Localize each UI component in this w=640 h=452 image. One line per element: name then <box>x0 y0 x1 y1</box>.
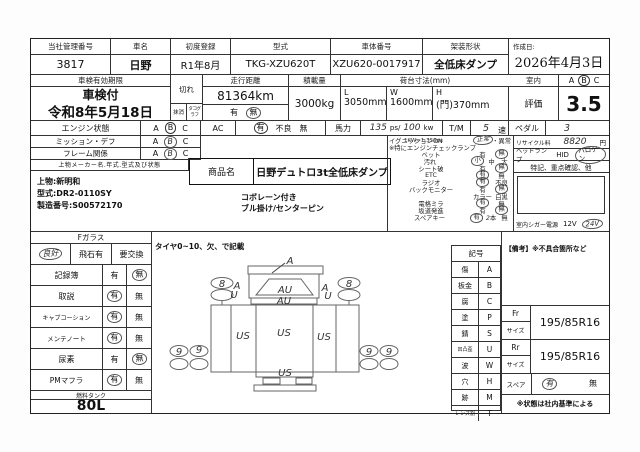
power-ps: 135 <box>370 123 387 133</box>
body-serial: 製造番号:S00572170 <box>37 200 123 211</box>
urea-yes: 有 <box>103 349 127 370</box>
bed-h: (門)370mm <box>436 97 505 111</box>
urea-no-circled: 無 <box>131 353 147 366</box>
maintenance-note-no: 無 <box>127 328 151 349</box>
bed-width-cell: W 1600mm <box>387 87 433 121</box>
cab-caution-yes-circled: 有 <box>107 311 123 324</box>
tachograph-no-circled: 無 <box>246 106 262 119</box>
remarks-header: 【備考】※不具合箇所など <box>505 243 607 253</box>
mark-windshield: AU <box>277 285 293 296</box>
legend-name: 波 <box>452 358 479 373</box>
legend-row-corrosion: 腐C <box>452 294 500 310</box>
legend-row-hole: 穴H <box>452 374 500 390</box>
mark-front-wheel-right: 8 <box>346 279 352 290</box>
interior-grade: A B C <box>559 75 609 87</box>
load-capacity: 3000kg <box>289 87 341 121</box>
label-rear-size: サイズ <box>501 356 531 373</box>
mark-roof: A <box>286 256 294 267</box>
legend-code: M <box>479 390 500 405</box>
tm-value: 5 <box>483 123 489 134</box>
power-ps-unit: ps/ <box>390 124 400 132</box>
shaken-status: 車検付 <box>31 87 170 102</box>
label-load-capacity: 積載量 <box>289 75 341 87</box>
label-tm: T/M <box>443 121 471 136</box>
label-model: 型式 <box>231 39 331 55</box>
model-code: TKG-XZU620T <box>231 55 331 75</box>
first-reg: R1年8月 <box>171 55 231 75</box>
label-management-no: 当社管理番号 <box>31 39 111 55</box>
legend-row-dent: 凹凸歪U <box>452 342 500 358</box>
maintenance-note-yes-circled: 有 <box>107 332 123 345</box>
sparekey-unit: 本 <box>490 215 496 222</box>
shaken-status-cell: 車検付 令和8年5月18日 <box>31 87 171 121</box>
record-book-no-cell: 無 <box>127 265 151 286</box>
mark-bed-center: US <box>277 328 291 339</box>
body-note-koboleen: コボレーン付き <box>241 192 297 203</box>
legend-row-sheetmetal: 板金B <box>452 278 500 294</box>
label-ac: AC <box>201 121 236 136</box>
label-interior: 室内 <box>509 75 559 87</box>
mark-rear-left-2: 9 <box>196 345 202 356</box>
engine-grade: A B C <box>141 121 201 136</box>
label-first-reg: 初度登録 <box>171 39 231 55</box>
pedal-value-cell: 3 <box>546 121 609 136</box>
fglass-stonechip: 飛石有 <box>71 244 112 265</box>
bed-length-cell: L 3050mm <box>341 87 387 121</box>
bed-w: 1600mm <box>390 97 429 108</box>
product-name: 日野デュトロ3t全低床ダンプ <box>254 159 390 184</box>
legend-code: W <box>479 358 500 373</box>
legend-row-rust: 錆S <box>452 326 500 342</box>
label-car-name: 車名 <box>111 39 171 55</box>
legend-code: P <box>479 310 500 325</box>
label-manual: 取説 <box>31 286 103 307</box>
ac-no: 無 <box>300 123 308 134</box>
pm-muffler-no: 無 <box>127 370 151 391</box>
legend-name: 穴 <box>452 374 479 389</box>
record-book-yes: 有 <box>103 265 127 286</box>
label-spare-key: スペアキー <box>389 213 470 222</box>
manual-yes-cell: 有 <box>103 286 127 307</box>
mission-grade: A B C <box>141 136 201 148</box>
label-body-shape: 架装形状 <box>423 39 509 55</box>
power-value: 135 ps/ 100 kw <box>361 121 443 136</box>
mark-right-fender-u: U <box>324 291 332 302</box>
fglass-replace: 要交換 <box>112 244 151 265</box>
label-front-glass: Fガラス <box>31 231 151 244</box>
mark-bed-right: US <box>317 332 331 343</box>
inspection-sheet: 当社管理番号 車名 初度登録 型式 車体番号 架装形状 3817 日野 R1年8… <box>30 38 610 414</box>
chassis-no: XZU620-0017917 <box>331 55 423 75</box>
label-record-book: 記録簿 <box>31 265 103 286</box>
label-bed-h: H <box>436 88 505 97</box>
legend-name: 凹凸歪 <box>452 342 479 357</box>
mission-c: C <box>183 137 189 146</box>
pm-muffler-yes-cell: 有 <box>103 370 127 391</box>
label-bed-dimensions: 荷台寸法(mm) <box>341 75 509 87</box>
divider-equipment-left <box>387 136 388 231</box>
fuel-tank-capacity: 80L <box>31 400 151 413</box>
label-spare-tire: スペア <box>501 373 532 394</box>
legend-code: B <box>479 278 500 293</box>
front-tire-size: 195/85R16 <box>531 305 609 339</box>
label-power: 馬力 <box>326 121 361 136</box>
rating-value: 3.5 <box>559 87 609 121</box>
label-urea: 尿素 <box>31 349 103 370</box>
created-date-cell: 作成日: 2026年4月3日 <box>509 39 609 75</box>
label-special-notes: 特記、重点確認、他 <box>513 161 609 173</box>
legend-code: S <box>479 326 500 341</box>
cigar-power-row: 室内シガー電源 12V 24V <box>513 217 609 231</box>
legend-name: 板金 <box>452 278 479 293</box>
divider-left-col <box>151 231 152 413</box>
label-cigar-power: 室内シガー電源 <box>516 220 558 229</box>
cigar-12v: 12V <box>563 220 577 228</box>
ac-yes-circled: 有 <box>254 122 268 134</box>
frame-a: A <box>153 149 158 158</box>
symbol-legend-table: 記号 傷A 板金B 腐C 塗P 錆S 凹凸歪U 波W 穴H 跡M レンズ割T <box>451 245 501 411</box>
label-bed-l: L <box>344 88 383 97</box>
engine-b-circled: B <box>165 122 177 134</box>
mission-b-circled: B <box>164 135 177 147</box>
spare-no: 無 <box>589 378 597 389</box>
label-pedal: ペダル <box>509 121 546 136</box>
body-note-centerpin: ブル掛け/センターピン <box>241 203 324 214</box>
legend-code: A <box>479 262 500 277</box>
interior-c: C <box>594 76 600 85</box>
bed-height-cell: H (門)370mm <box>433 87 509 121</box>
rear-tire-size: 195/85R16 <box>531 339 609 373</box>
front-bumper <box>248 266 323 274</box>
pm-muffler-yes-circled: 有 <box>107 374 123 387</box>
cab-caution-yes-cell: 有 <box>103 307 127 328</box>
mark-rear-right-2: 9 <box>386 347 392 358</box>
ac-options: 有 不良 無 <box>236 121 326 136</box>
spare-yes-circled: 有 <box>542 377 558 390</box>
engine-c: C <box>182 124 188 133</box>
recycle-fee-unit: 円 <box>600 137 607 147</box>
power-kw-unit: kw <box>424 124 434 132</box>
frame-c: C <box>183 149 189 158</box>
truck-top-view-diagram: A AU AU A U A U 8 8 US US US US 9 9 9 9 <box>164 252 444 412</box>
created-date: 2026年4月3日 <box>509 49 609 73</box>
mark-cab-front: AU <box>276 296 292 307</box>
product-name-box: 商品名 日野デュトロ3t全低床ダンプ <box>189 158 391 185</box>
manual-yes-circled: 有 <box>107 290 123 303</box>
label-cab-caution: キャブコーション <box>31 307 103 328</box>
legend-row-trace: 跡M <box>452 390 500 406</box>
tire-grading-note: タイヤ0~10、欠、で記載 <box>155 241 244 252</box>
cigar-24v-circled: 24V <box>581 218 602 230</box>
body-maker: 上物:新明和 <box>37 176 80 187</box>
tailgate-bar <box>254 385 316 391</box>
interior-a: A <box>569 76 574 85</box>
mission-a: A <box>153 137 158 146</box>
label-chassis-no: 車体番号 <box>331 39 423 55</box>
mark-tailgate: US <box>278 368 292 379</box>
legend-row-lens-crack: レンズ割T <box>452 406 500 421</box>
legend-name: 塗 <box>452 310 479 325</box>
legend-code: H <box>479 374 500 389</box>
legend-name: 傷 <box>452 262 479 277</box>
label-front-tire: Fr <box>501 305 531 322</box>
label-mission-diff: ミッション・デフ <box>31 136 141 148</box>
fglass-good-circled: 良好 <box>39 247 63 260</box>
legend-name: 跡 <box>452 390 479 405</box>
sparekey-no: 無 <box>498 213 511 222</box>
condition-footnote: ※状態は社内基準による <box>501 394 609 413</box>
legend-name: 腐 <box>452 294 479 309</box>
legend-row-scratch: 傷A <box>452 262 500 278</box>
legend-code: C <box>479 294 500 309</box>
label-engine-condition: エンジン状態 <box>31 121 141 136</box>
maintenance-note-yes-cell: 有 <box>103 328 127 349</box>
label-kire: 切れ <box>171 75 203 104</box>
label-masshou: 抹消 <box>171 104 187 121</box>
sparekey-yes-circled: 有 <box>470 212 484 222</box>
interior-b-circled: B <box>578 75 590 87</box>
headlamp-row: ヘッドランプ HID ハロゲン <box>513 149 609 161</box>
label-body-maker-header: 上物メーカー名.年式.型式及び状態 <box>31 158 189 171</box>
label-rear-tire: Rr <box>501 339 531 356</box>
label-product-name: 商品名 <box>190 159 254 184</box>
headlamp-hid: HID <box>556 151 569 159</box>
label-bed-w: W <box>390 88 429 97</box>
legend-name: 錆 <box>452 326 479 341</box>
legend-title: 記号 <box>452 246 500 262</box>
pedal-value: 3 <box>564 123 570 134</box>
label-tachograph: タコグラフ <box>187 104 203 121</box>
tm-unit: 速 <box>498 125 506 136</box>
spare-tire-row: スペア 有 無 <box>501 373 609 394</box>
special-notes-box <box>517 176 605 214</box>
ac-bad: 不良 <box>276 123 292 134</box>
tm-value-cell: 5 速 <box>471 121 509 136</box>
mark-left-fender-u: U <box>230 290 238 301</box>
urea-no-cell: 無 <box>127 349 151 370</box>
bed-l: 3050mm <box>344 97 383 108</box>
body-model: 型式:DR2-0110SY <box>37 188 112 199</box>
car-name: 日野 <box>111 55 171 75</box>
mileage-value: 81364km <box>203 87 289 105</box>
body-shape: 全低床ダンプ <box>423 55 509 75</box>
legend-code: U <box>479 342 500 357</box>
label-pm-muffler: PMマフラ <box>31 370 103 391</box>
legend-code: T <box>479 406 500 421</box>
legend-row-wave: 波W <box>452 358 500 374</box>
label-maintenance-note: メンテノート <box>31 328 103 349</box>
mark-rear-left-1: 9 <box>176 347 182 358</box>
equip-row-sparekey: スペアキー 有 2本 無 <box>389 213 511 222</box>
shaken-date: 令和8年5月18日 <box>31 102 170 120</box>
mark-rear-right-1: 9 <box>366 347 372 358</box>
cargo-box <box>256 305 313 377</box>
legend-name: レンズ割 <box>452 406 479 421</box>
label-front-size: サイズ <box>501 322 531 339</box>
mark-bed-left: US <box>236 331 250 342</box>
cab-caution-no: 無 <box>127 307 151 328</box>
mark-front-wheel-left: 8 <box>219 279 225 290</box>
fglass-good-cell: 良好 <box>31 244 71 265</box>
tachograph-options: 有 無 <box>203 105 289 121</box>
label-mileage: 走行距離 <box>203 75 289 87</box>
tachograph-yes: 有 <box>230 107 238 118</box>
label-rating: 評価 <box>509 87 559 121</box>
management-no: 3817 <box>31 55 111 75</box>
manual-no: 無 <box>127 286 151 307</box>
legend-row-paint: 塗P <box>452 310 500 326</box>
power-kw: 100 <box>403 123 420 133</box>
engine-a: A <box>153 124 158 133</box>
record-book-no-circled: 無 <box>131 269 147 282</box>
